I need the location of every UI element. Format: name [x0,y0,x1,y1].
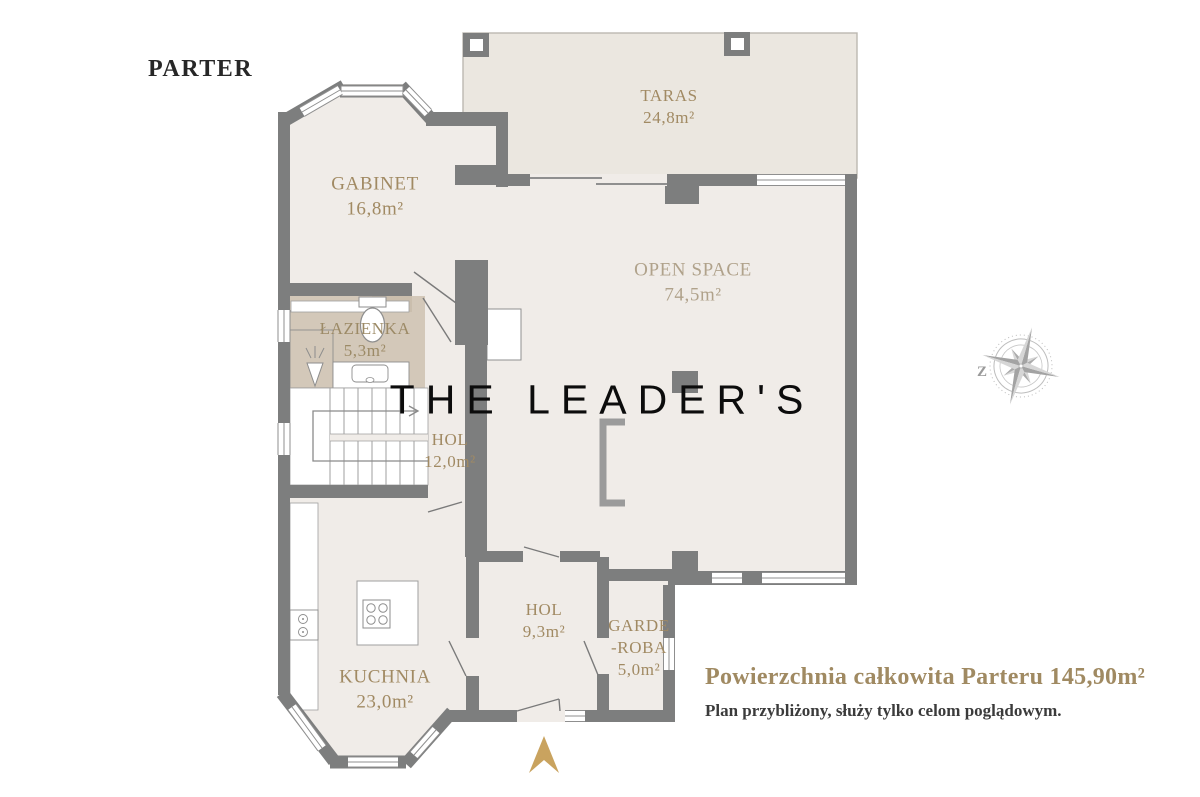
room-label-garderoba: GARDE -ROBA 5,0m² [608,615,670,681]
room-label-kuchnia: KUCHNIA 23,0m² [339,665,431,714]
disclaimer-text: Plan przybliżony, służy tylko celom pogl… [705,701,1062,721]
floor-plan-page: Z PARTER TARAS 24,8m² GABINET 16,8m² OPE… [0,0,1200,797]
kitchen-counter [290,503,318,710]
watermark-text: THE LEADER'S [390,377,815,424]
room-label-open-space: OPEN SPACE 74,5m² [634,258,752,307]
fireplace [487,309,521,360]
kitchen-island [357,581,418,645]
total-area-text: Powierzchnia całkowita Parteru 145,90m² [705,664,1145,691]
compass-west-label: Z [977,364,987,380]
room-label-lazienka: ŁAZIENKA 5,3m² [320,318,411,362]
room-label-gabinet: GABINET 16,8m² [331,172,419,221]
terrace-pillar-icon [724,32,750,56]
room-label-hol2: HOL 9,3m² [523,599,566,643]
entrance-arrow-icon [529,736,559,773]
room-label-taras: TARAS 24,8m² [640,85,697,129]
compass-rose-icon: Z [972,317,1071,416]
terrace-pillar-icon [463,33,489,57]
room-label-hol: HOL 12,0m² [424,429,476,473]
page-title: PARTER [148,56,253,83]
bathroom-shelf [291,301,409,312]
